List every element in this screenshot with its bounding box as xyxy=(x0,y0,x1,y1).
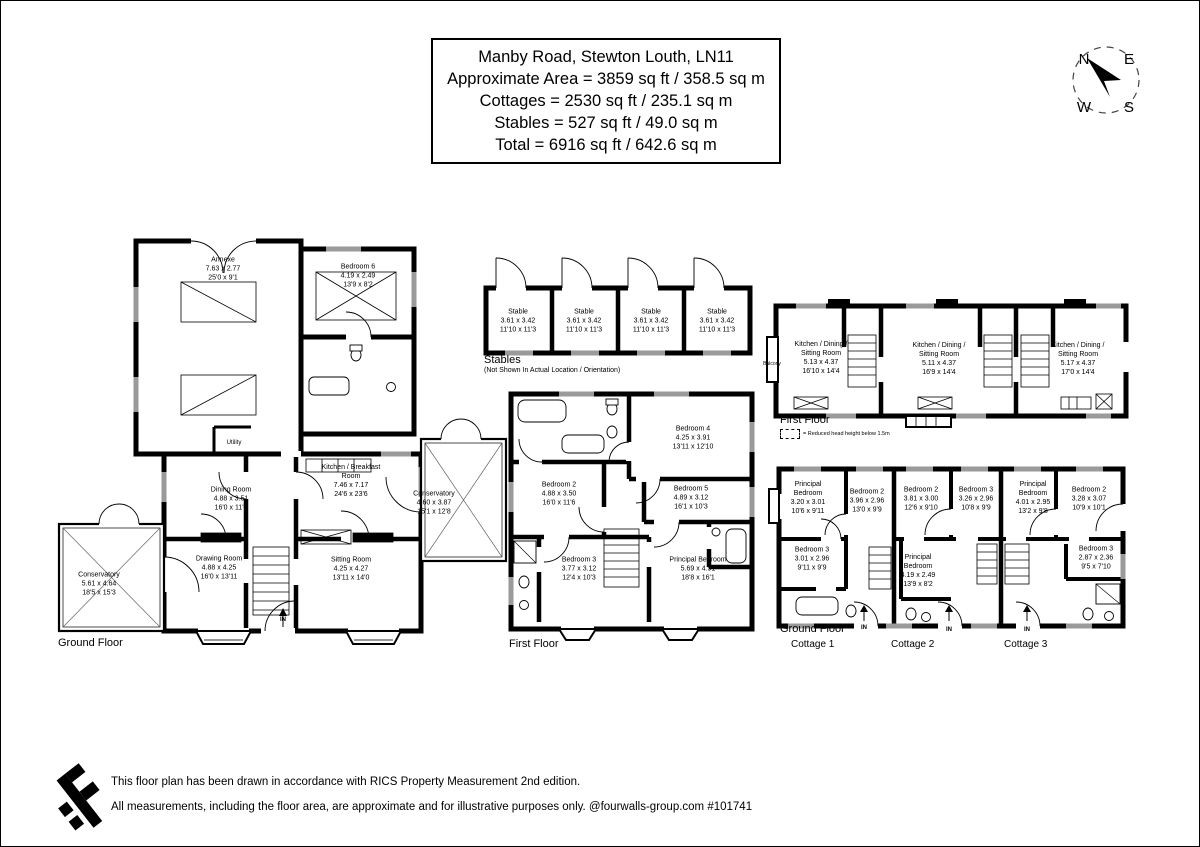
footer-rics-line: This floor plan has been drawn in accord… xyxy=(111,776,580,788)
room-label: Bedroom 2 3.81 x 3.00 12'6 x 9'10 xyxy=(904,485,939,512)
bath-icon xyxy=(309,377,349,395)
footer-disclaimer-line: All measurements, including the floor ar… xyxy=(111,801,752,813)
toilet-icon xyxy=(519,576,529,588)
toilet-icon xyxy=(1083,608,1093,620)
entrance-label: IN xyxy=(1024,627,1030,633)
compass-w: W xyxy=(1077,99,1092,116)
compass-n: N xyxy=(1079,51,1090,68)
floorplan-page: Manby Road, Stewton Louth, LN11 Approxim… xyxy=(0,0,1200,847)
bath-icon xyxy=(726,529,746,563)
cottages-area-line: Cottages = 2530 sq ft / 235.1 sq m xyxy=(437,90,775,112)
room-label: Bedroom 4 4.25 x 3.91 13'11 x 12'10 xyxy=(673,424,714,451)
total-area-line: Total = 6916 sq ft / 642.6 sq m xyxy=(437,134,775,156)
walls xyxy=(136,241,421,631)
room-label: Bedroom 2 3.28 x 3.07 10'9 x 10'1 xyxy=(1072,485,1107,512)
room-label: Bedroom 5 4.89 x 3.12 16'1 x 10'3 xyxy=(674,484,709,511)
cottage-1-label: Cottage 1 xyxy=(791,639,834,650)
room-label: Stable 3.61 x 3.42 11'10 x 11'3 xyxy=(633,307,669,334)
room-label: Conservatory 5.61 x 4.64 18'5 x 15'3 xyxy=(78,570,120,597)
room-label: Principal Bedroom 4.19 x 2.49 13'9 x 8'2 xyxy=(896,553,940,589)
caption-cottages-ground-floor: Ground Floor xyxy=(780,623,845,635)
room-label: Kitchen / Dining / Sitting Room 5.17 x 4… xyxy=(1049,341,1107,377)
porch xyxy=(769,489,779,523)
caption-main-first-floor: First Floor xyxy=(509,638,559,650)
cottage-2-label: Cottage 2 xyxy=(891,639,934,650)
compass-s: S xyxy=(1124,99,1134,116)
room-label: Annexe 7.63 x 2.77 25'0 x 9'1 xyxy=(206,255,241,282)
conservatory-left xyxy=(59,504,164,631)
main-first-floor-plan xyxy=(504,387,759,645)
room-label: Principal Bedroom 5.69 x 4.91 18'8 x 16'… xyxy=(669,555,726,582)
room-label: Stable 3.61 x 3.42 11'10 x 11'3 xyxy=(566,307,602,334)
fireplace-icon xyxy=(353,533,393,542)
room-label: Kitchen / Breakfast Room 7.46 x 7.17 24'… xyxy=(320,463,382,499)
caption-main-ground-floor: Ground Floor xyxy=(58,637,123,649)
subcaption-stables: (Not Shown In Actual Location / Orientat… xyxy=(484,367,620,374)
fourwalls-logo-icon xyxy=(43,759,113,841)
approx-area-line: Approximate Area = 3859 sq ft / 358.5 sq… xyxy=(437,68,775,90)
legend-text: = Reduced head height below 1.5m xyxy=(803,431,890,437)
walls xyxy=(511,394,752,629)
cottage-3-label: Cottage 3 xyxy=(1004,639,1047,650)
entrance-label: IN xyxy=(946,627,952,633)
entrance-label: IN xyxy=(861,625,867,631)
title-box: Manby Road, Stewton Louth, LN11 Approxim… xyxy=(431,38,781,164)
room-label: Bedroom 3 2.87 x 2.36 9'5 x 7'10 xyxy=(1079,544,1114,571)
main-ground-floor-plan xyxy=(51,227,511,649)
room-label: Stable 3.61 x 3.42 11'10 x 11'3 xyxy=(699,307,735,334)
sink-icon xyxy=(922,613,931,622)
fireplace-icon xyxy=(201,533,241,542)
room-label: Conservatory 4.60 x 3.87 15'1 x 12'8 xyxy=(413,489,455,516)
reduced-head-height-legend: = Reduced head height below 1.5m xyxy=(780,429,890,439)
toilet-icon xyxy=(906,608,916,620)
room-label: Principal Bedroom 3.20 x 3.01 10'6 x 9'1… xyxy=(786,480,830,516)
room-label: Bedroom 3 3.01 x 2.96 9'11 x 9'9 xyxy=(795,545,830,572)
sink-icon xyxy=(1105,612,1114,621)
address-line: Manby Road, Stewton Louth, LN11 xyxy=(437,46,775,68)
compass-icon: N E W S xyxy=(1059,31,1154,126)
room-label: Bedroom 6 4.19 x 2.49 13'9 x 8'2 xyxy=(341,262,376,289)
room-label: Kitchen / Dining / Sitting Room 5.11 x 4… xyxy=(910,341,968,377)
entrance-label: IN xyxy=(280,617,286,623)
room-label: Bedroom 3 3.26 x 2.96 10'8 x 9'9 xyxy=(959,485,994,512)
toilet-icon xyxy=(607,426,617,438)
stables-area-line: Stables = 527 sq ft / 49.0 sq m xyxy=(437,112,775,134)
room-label: Bedroom 3 3.77 x 3.12 12'4 x 10'3 xyxy=(562,555,597,582)
caption-stables: Stables xyxy=(484,354,521,366)
sink-icon xyxy=(520,601,529,610)
room-label: Bedroom 2 3.96 x 2.96 13'0 x 9'9 xyxy=(850,487,885,514)
bath-icon xyxy=(518,400,566,422)
room-label: Drawing Room 4.88 x 4.25 16'0 x 13'11 xyxy=(196,554,242,581)
stables-plan xyxy=(483,254,755,358)
bath-icon xyxy=(562,435,604,453)
compass-e: E xyxy=(1124,51,1134,68)
room-label: Kitchen / Dining / Sitting Room 5.13 x 4… xyxy=(792,340,850,376)
sink-icon xyxy=(387,383,396,392)
door-arc xyxy=(496,258,724,288)
porch xyxy=(906,416,951,427)
room-label: Utility xyxy=(227,440,242,448)
room-label: Dining Room 4.88 x 3.51 16'0 x 11'6 xyxy=(211,485,251,512)
toilet-icon xyxy=(846,605,856,617)
dashed-box-icon xyxy=(780,429,800,439)
room-label: Principal Bedroom 4.01 x 2.95 13'2 x 9'8 xyxy=(1011,480,1055,516)
balcony xyxy=(767,337,778,382)
caption-cottages-first-floor: First Floor xyxy=(780,414,830,426)
room-label: Stable 3.61 x 3.42 11'10 x 11'3 xyxy=(500,307,536,334)
room-label: Sitting Room 4.25 x 4.27 13'11 x 14'0 xyxy=(331,555,371,582)
room-label: Bedroom 2 4.88 x 3.50 16'0 x 11'6 xyxy=(542,480,577,507)
bath-icon xyxy=(796,597,838,615)
sink-icon xyxy=(712,528,720,536)
balcony-label: Balcony xyxy=(763,361,781,367)
compass-needle-icon xyxy=(1087,58,1121,97)
